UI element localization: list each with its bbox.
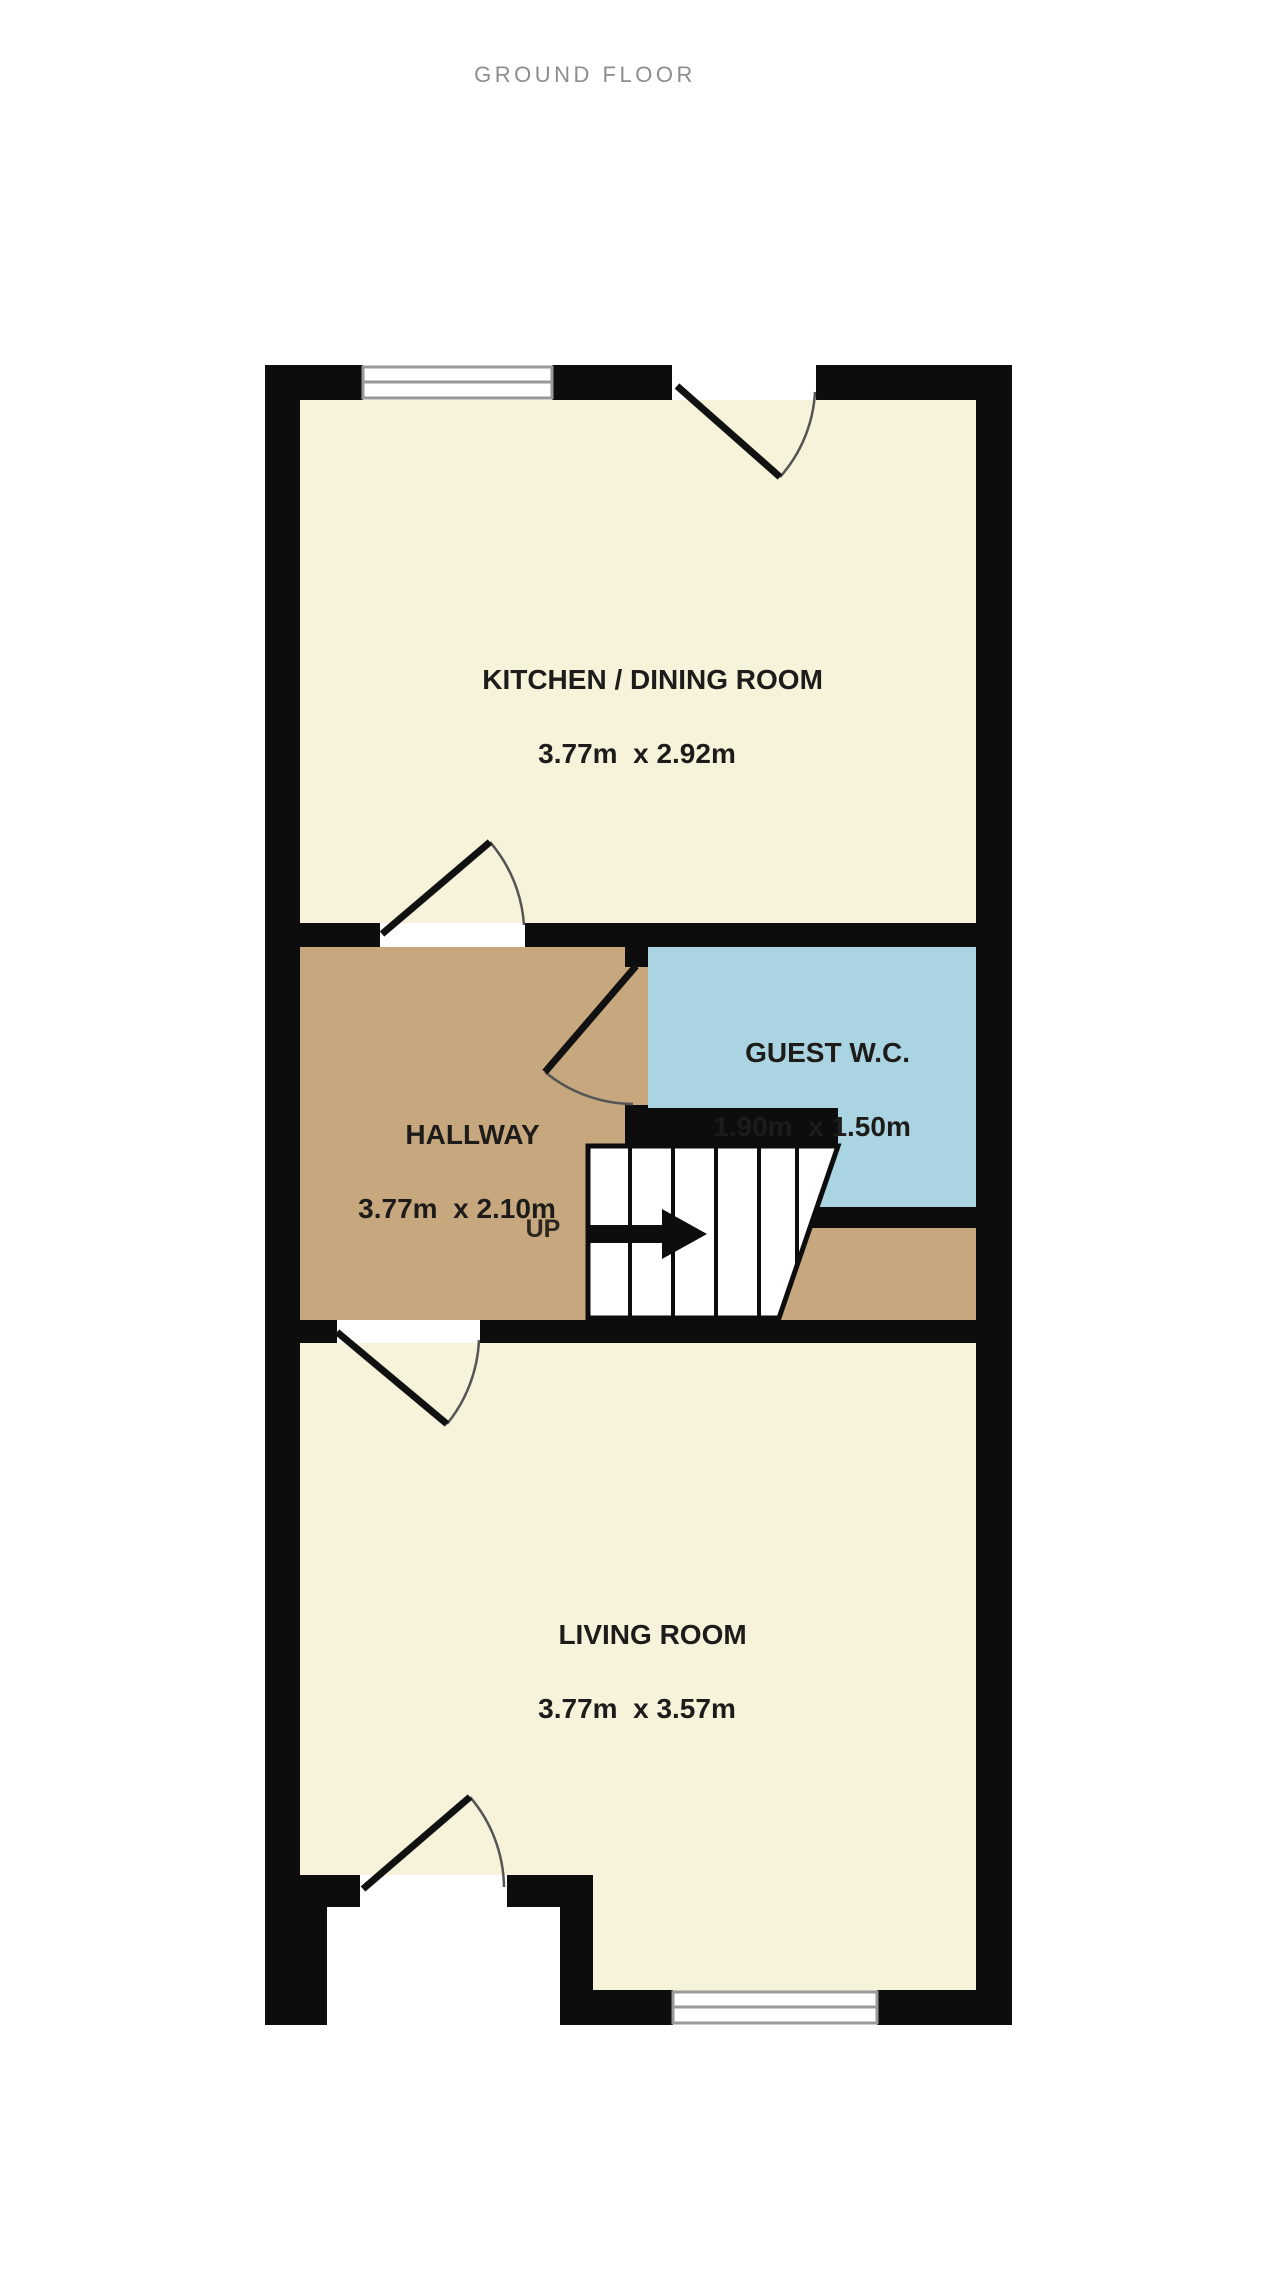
kitchen-dims: 3.77m x 2.92m [451,735,823,772]
porch-recess [300,1875,593,2296]
living-room-window [673,1992,877,2023]
room-label-kitchen: KITCHEN / DINING ROOM 3.77m x 2.92m [451,624,823,846]
wall-hall-living-right [480,1320,976,1343]
wall-bottom-right [877,1990,1012,2025]
wall-bottom-left [560,1990,673,2025]
floorplan-page: GROUND FLOOR KITCHEN / DINING ROOM 3.77m… [0,0,1280,2296]
kitchen-name: KITCHEN / DINING ROOM [482,664,823,695]
stairs-up-label: UP [526,1215,561,1244]
wall-kitchen-hall-left [300,923,380,947]
room-label-guest-wc: GUEST W.C. 1.90m x 1.50m [713,997,911,1219]
wall-left [265,365,300,2025]
guest-wc-dims: 1.90m x 1.50m [713,1108,911,1145]
hallway-name: HALLWAY [405,1119,539,1150]
kitchen-window [363,367,552,398]
wall-wc-stub-top [625,947,648,967]
room-label-living: LIVING ROOM 3.77m x 3.57m [527,1579,746,1801]
guest-wc-name: GUEST W.C. [745,1037,910,1068]
wall-hall-living-left [300,1320,337,1343]
wall-porch-mid [507,1875,593,1907]
floorplan-drawing [0,0,1280,2296]
living-dims: 3.77m x 3.57m [527,1690,746,1727]
floor-title: GROUND FLOOR [474,62,696,88]
living-name: LIVING ROOM [558,1619,746,1650]
wall-top-mid [552,365,672,400]
wall-right [976,365,1012,2025]
room-label-hallway: HALLWAY 3.77m x 2.10m [358,1079,556,1301]
wall-porch-left-ext [300,1875,327,2025]
wall-porch-vertical [560,1907,593,1992]
wall-kitchen-hall-right [525,923,976,947]
